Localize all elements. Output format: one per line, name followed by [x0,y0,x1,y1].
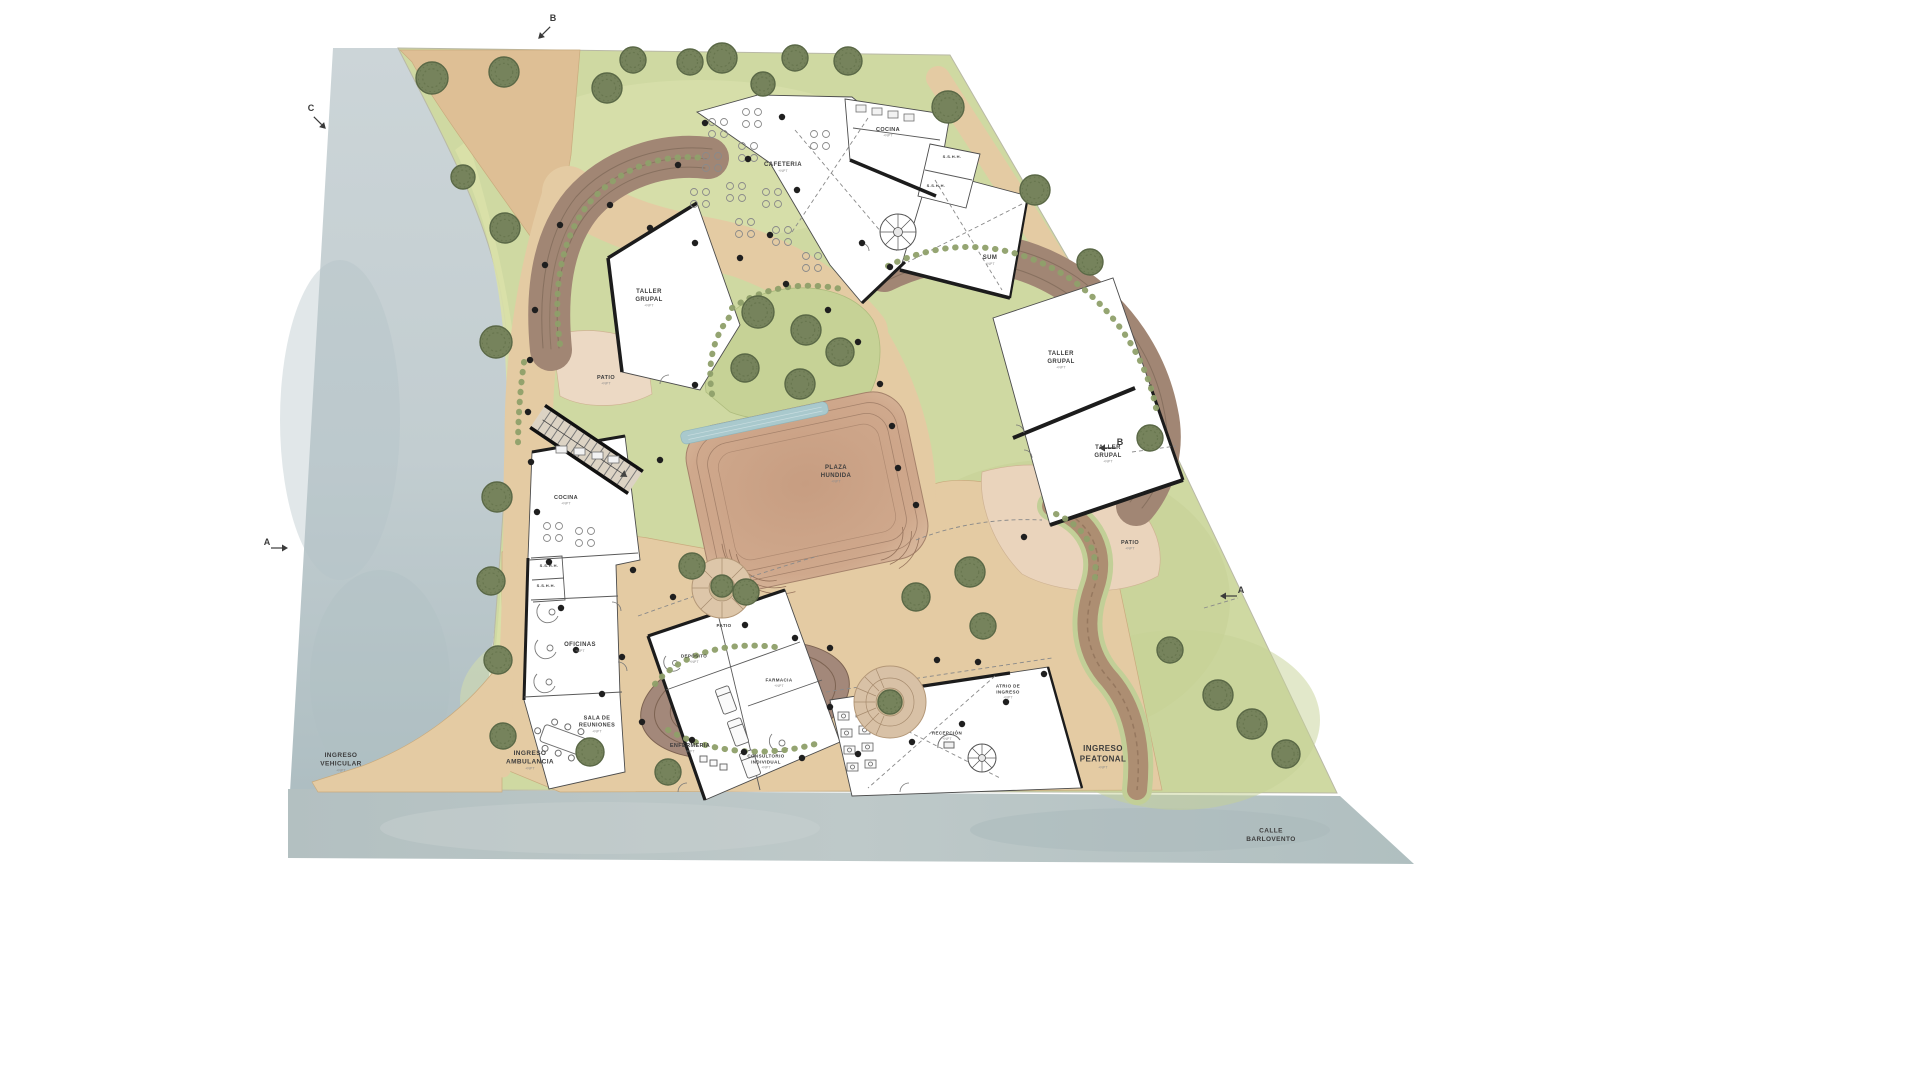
bollard-dot [689,737,695,743]
tree-icon [782,45,808,71]
tree-icon [932,91,964,123]
bollard-dot [527,357,533,363]
bollard-dot [692,240,698,246]
tree-icon [482,482,512,512]
bollard-dot [675,162,681,168]
bollard-dot [534,509,540,515]
tree-icon [620,47,646,73]
section-marker-letter: C [308,103,315,113]
bollard-dot [573,647,579,653]
tree-icon [826,338,854,366]
site-plan-drawing: BCBAA [0,0,1920,1080]
tree-icon [1272,740,1300,768]
bollard-dot [855,339,861,345]
bollard-dot [558,605,564,611]
street-wash [970,808,1330,852]
bollard-dot [779,114,785,120]
tree-icon [655,759,681,785]
bollard-dot [657,457,663,463]
tree-icon [1137,425,1163,451]
tree-icon [785,369,815,399]
bollard-dot [827,704,833,710]
tree-icon [677,49,703,75]
tree-icon [731,354,759,382]
tree-icon [1237,709,1267,739]
bollard-dot [619,654,625,660]
bollard-dot [783,281,789,287]
section-marker-letter: A [264,537,271,547]
tree-icon [1077,249,1103,275]
bollard-dot [877,381,883,387]
bollard-dot [647,225,653,231]
section-marker-c: C [308,103,329,131]
tree-icon [416,62,448,94]
section-marker-letter: B [550,13,557,23]
bollard-dot [525,409,531,415]
bollard-dot [532,307,538,313]
tree-icon [707,43,737,73]
tree-icon [592,73,622,103]
tree-icon [480,326,512,358]
bollard-dot [542,262,548,268]
bollard-dot [767,232,773,238]
tree-icon [1203,680,1233,710]
riverside-wash [280,260,400,580]
bollard-dot [855,751,861,757]
bollard-dot [799,755,805,761]
tree-icon [451,165,475,189]
section-marker-a: A [264,537,288,552]
bollard-dot [737,255,743,261]
bollard-dot [741,749,747,755]
tree-icon [834,47,862,75]
bollard-dot [889,423,895,429]
tree-icon [490,213,520,243]
street-wash [380,802,820,854]
bollard-dot [1041,671,1047,677]
bollard-dot [859,240,865,246]
bollard-dot [909,739,915,745]
tree-icon [477,567,505,595]
tree-icon [733,579,759,605]
bollard-dot [692,382,698,388]
tree-icon [751,72,775,96]
bollard-dot [745,156,751,162]
tree-icon [679,553,705,579]
section-marker-letter: A [1238,585,1245,595]
bollard-dot [607,202,613,208]
tree-icon [576,738,604,766]
tree-icon [489,57,519,87]
bollard-dot [670,594,676,600]
bollard-dot [913,502,919,508]
bollard-dot [528,459,534,465]
spiral-stair-reception [968,744,996,772]
tree-icon [902,583,930,611]
bollard-dot [934,657,940,663]
section-marker-letter: B [1117,437,1124,447]
bollard-dot [827,645,833,651]
tree-icon [791,315,821,345]
tree-icon [878,690,902,714]
bollard-dot [557,222,563,228]
spiral-stair-cafeteria [880,214,916,250]
bollard-dot [792,635,798,641]
tree-icon [742,296,774,328]
tree-icon [1157,637,1183,663]
bollard-dot [630,567,636,573]
tree-icon [955,557,985,587]
bollard-dot [546,559,552,565]
bollard-dot [599,691,605,697]
tree-icon [970,613,996,639]
site-plan-canvas: BCBAA CAFETERIA+NPTCOCINA+NPTS.S.H.H.S.S… [0,0,1920,1080]
bollard-dot [702,120,708,126]
bollard-dot [895,465,901,471]
section-marker-b: B [536,13,557,41]
bollard-dot [825,307,831,313]
bollard-dot [1003,699,1009,705]
bollard-dot [975,659,981,665]
bollard-dot [742,622,748,628]
bollard-dot [1021,534,1027,540]
tree-icon [484,646,512,674]
tree-icon [490,723,516,749]
bollard-dot [887,264,893,270]
bollard-dot [639,719,645,725]
bollard-dot [794,187,800,193]
tree-icon [1020,175,1050,205]
bollard-dot [959,721,965,727]
tree-icon [711,575,733,597]
